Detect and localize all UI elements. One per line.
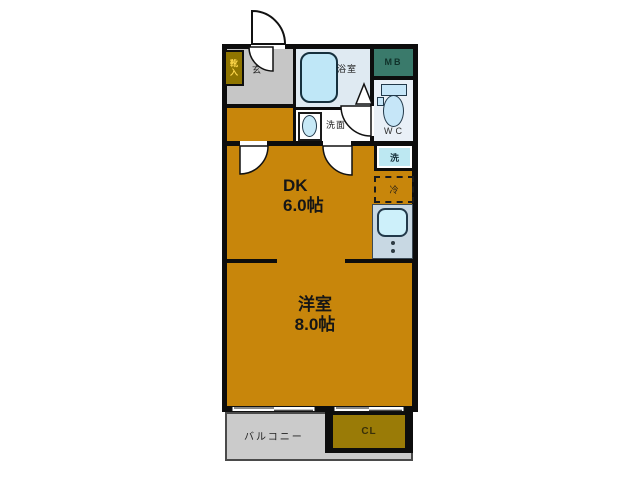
dk-name: DK [283,176,324,196]
balcony-label: バルコニー [244,428,304,443]
vanity-sink-basin-icon [302,115,317,137]
fridge-space: 冷 [374,176,414,203]
western-room-label: 洋室 8.0帖 [270,295,360,334]
front-door-swing-icon [252,11,285,44]
bathtub-icon [300,52,338,103]
washer-label: 洗 [390,151,399,164]
washer-box: 洗 [374,143,415,171]
toilet-tank-button-icon [377,97,384,106]
washroom-label: 洗面 [326,118,346,131]
western-name: 洋室 [270,295,360,315]
meter-box: MB [374,49,413,76]
kitchen-sink-icon [377,208,408,237]
bath-label: 浴室 [337,62,357,75]
closet: CL [333,415,405,448]
entrance-label: 玄 [252,63,261,76]
shoe-box-label: 靴入 [229,59,240,77]
dk-floor-upper [227,108,293,141]
door-gap-wc [370,106,374,136]
toilet-bowl-icon [383,95,404,127]
burner-dot-icon [391,249,395,253]
dk-size: 6.0帖 [283,196,324,216]
dk-room-label: DK 6.0帖 [283,176,324,215]
meter-box-label: MB [385,57,403,67]
floor-plan: 浴室 MB WC 洗面 洗 冷 靴入 玄 バルコニー CL [0,0,640,480]
closet-label: CL [361,426,376,437]
shoe-box: 靴入 [224,50,244,86]
western-room-floor [227,263,412,406]
burner-dot-icon [391,241,395,245]
western-size: 8.0帖 [270,315,360,335]
wc-label: WC [384,126,405,136]
fridge-label: 冷 [389,183,398,196]
front-door-gap [251,44,285,49]
